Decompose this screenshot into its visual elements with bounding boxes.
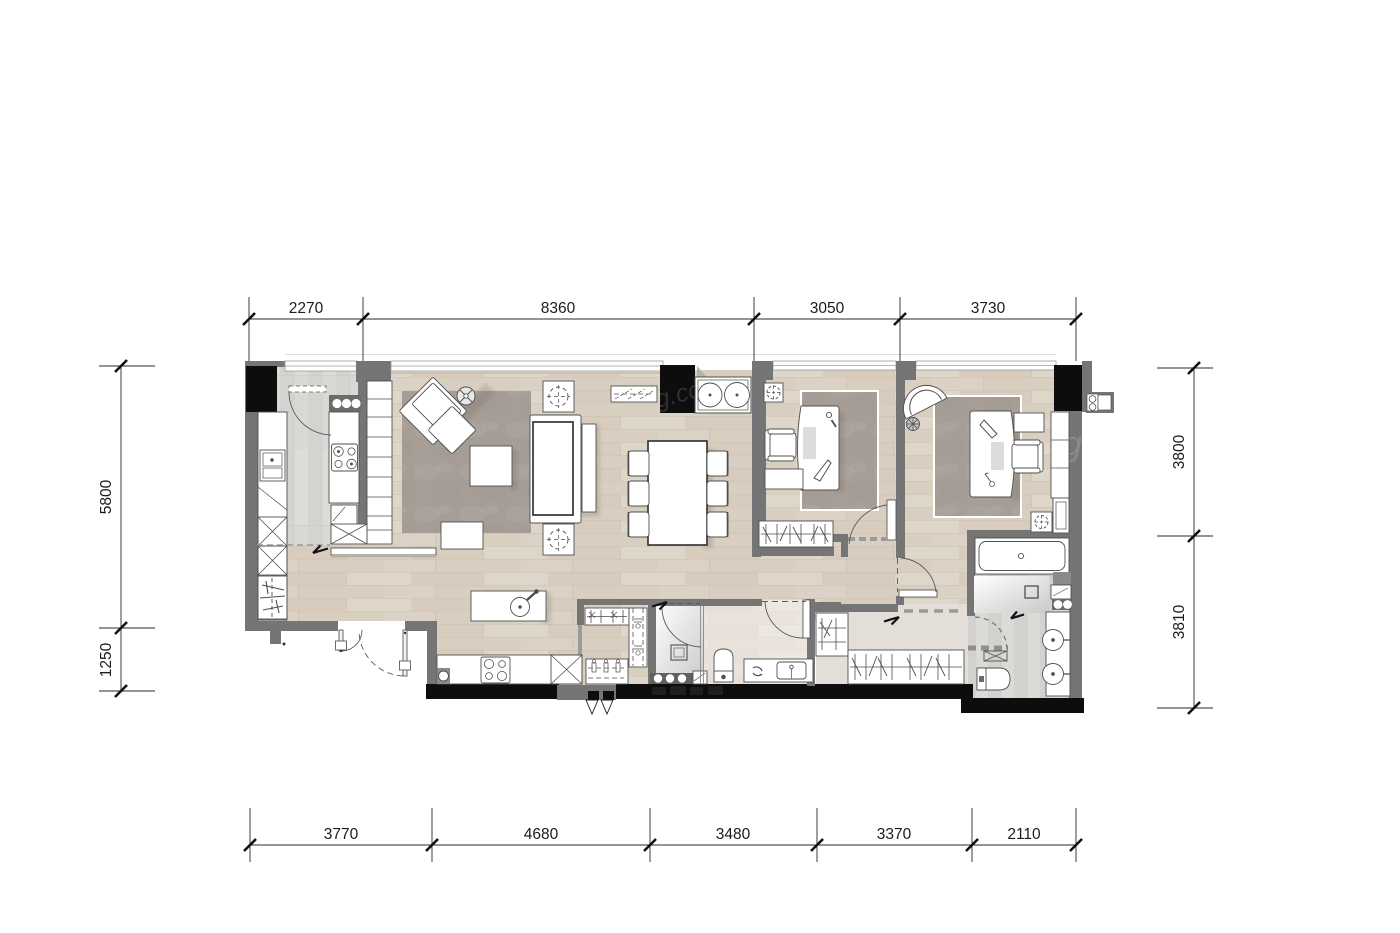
svg-text:3770: 3770 <box>324 826 359 843</box>
svg-text:4680: 4680 <box>524 826 559 843</box>
svg-text:3800: 3800 <box>1171 434 1188 469</box>
svg-text:3810: 3810 <box>1171 604 1188 639</box>
svg-text:2270: 2270 <box>289 300 324 317</box>
svg-text:3480: 3480 <box>716 826 751 843</box>
svg-text:1250: 1250 <box>98 642 115 677</box>
svg-text:3050: 3050 <box>810 300 845 317</box>
svg-text:3730: 3730 <box>971 300 1006 317</box>
svg-text:3370: 3370 <box>877 826 912 843</box>
svg-text:8360: 8360 <box>541 300 576 317</box>
svg-text:2110: 2110 <box>1007 826 1041 843</box>
svg-text:5800: 5800 <box>98 479 115 514</box>
